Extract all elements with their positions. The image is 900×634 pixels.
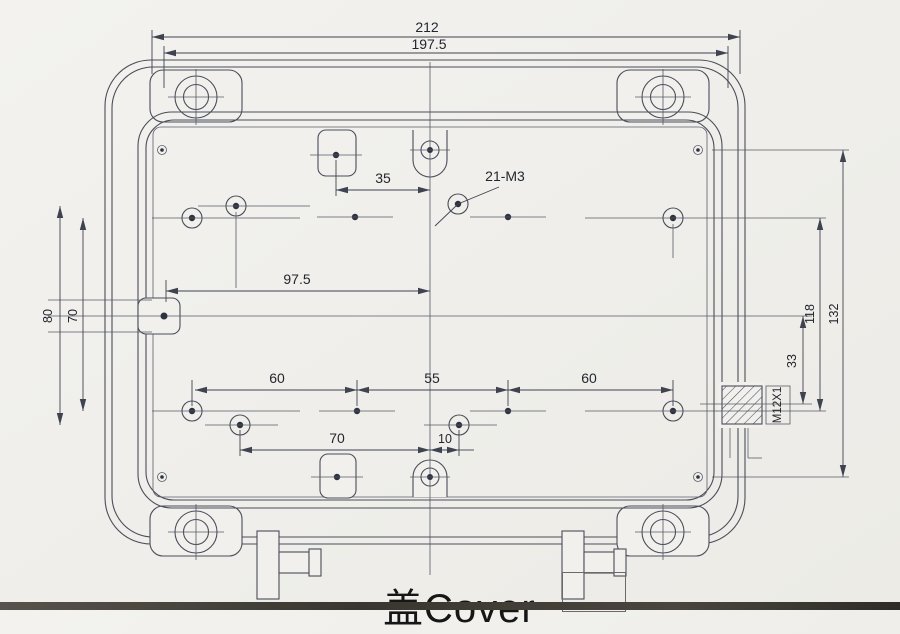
m3-hole <box>470 214 546 220</box>
dim-left-inner: 70 <box>66 309 80 323</box>
hole-pattern <box>152 141 703 486</box>
callout-thread: 21-M3 <box>485 168 525 184</box>
m3-hole <box>424 415 497 435</box>
dim-right-outer: 132 <box>827 304 841 325</box>
cable-gland-boss <box>700 382 812 458</box>
dim-bottom-offset: 10 <box>438 432 452 446</box>
dim-bottom-seg3: 60 <box>581 370 597 386</box>
m3-hole <box>152 401 300 421</box>
dim-center-left: 97.5 <box>283 271 310 287</box>
drawing-canvas: 212 197.5 35 21-M3 97.5 80 70 60 55 60 <box>0 0 900 610</box>
m3-hole <box>161 313 168 320</box>
dim-right-inner: 118 <box>803 304 817 324</box>
m3-hole <box>585 401 690 421</box>
dim-inner-width: 197.5 <box>411 36 446 52</box>
m3-hole <box>470 408 546 414</box>
drawing-sheet: { "drawing": { "title": "盖Cover", "callo… <box>0 0 900 610</box>
m3-hole <box>585 208 690 258</box>
corner-hole <box>694 146 703 155</box>
dim-bottom-seg2: 55 <box>424 370 440 386</box>
dim-right-gland: 33 <box>785 354 799 368</box>
dim-bottom-seg1: 60 <box>269 370 285 386</box>
dim-bottom-tab: 70 <box>329 430 345 446</box>
m3-hole <box>152 208 300 228</box>
m3-hole <box>205 415 278 435</box>
m3-hole <box>319 408 395 414</box>
corner-hole <box>694 473 703 482</box>
panel-tabs <box>138 130 447 498</box>
m3-hole <box>317 214 393 220</box>
dim-left-outer: 80 <box>41 309 55 323</box>
scan-edge-band <box>0 602 900 610</box>
dim-tab-offset: 35 <box>375 170 391 186</box>
dim-overall-width: 212 <box>415 19 439 35</box>
corner-hole <box>158 146 167 155</box>
connector <box>257 531 321 599</box>
corner-hole <box>158 473 167 482</box>
callout-gland: M12X1 <box>772 387 784 423</box>
